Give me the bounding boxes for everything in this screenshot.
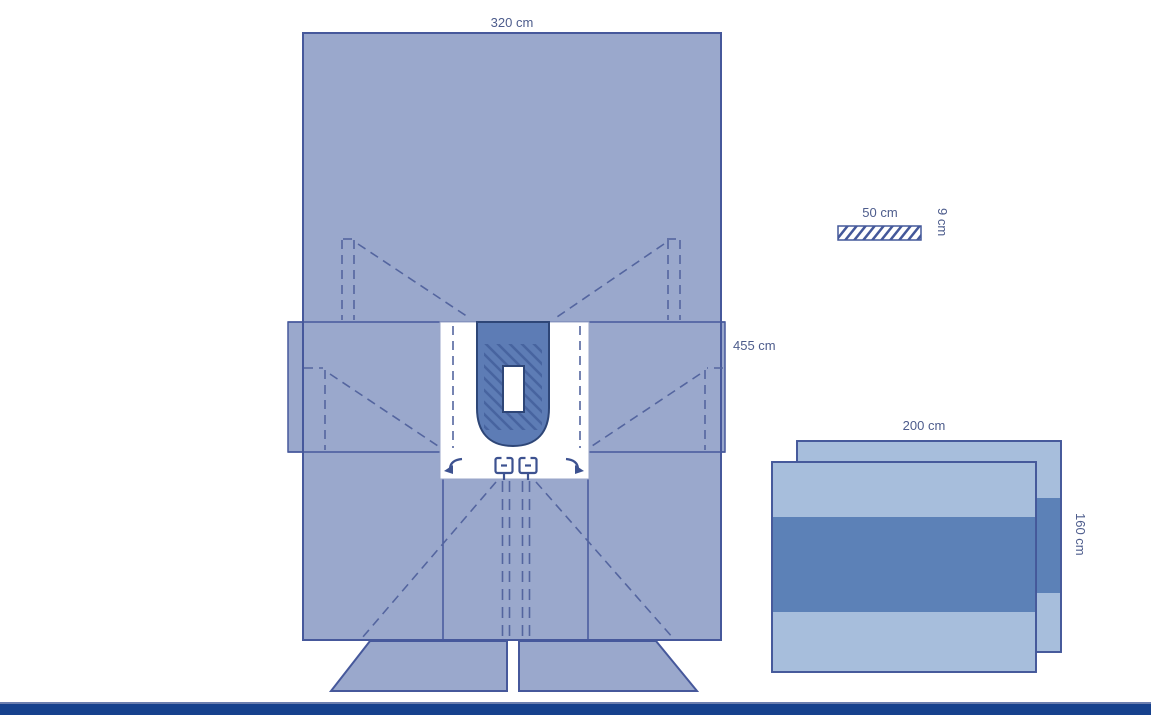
main-drape-length-label: 455 cm: [733, 338, 776, 353]
main-drape: 320 cm 455 cm: [288, 15, 776, 691]
surgical-drape-diagram: 320 cm 455 cm 50 cm 9 cm: [0, 0, 1151, 715]
side-drape-front-sheet: [772, 462, 1036, 672]
main-drape-width-label: 320 cm: [491, 15, 534, 30]
leg-flap-left: [331, 641, 507, 691]
fenestration-opening: [503, 366, 524, 412]
side-drape-height-label: 160 cm: [1073, 513, 1088, 556]
side-drapes: 200 cm 160 cm: [772, 418, 1088, 672]
scale-width-label: 50 cm: [862, 205, 897, 220]
scale-height-label: 9 cm: [935, 208, 950, 236]
leg-flap-right: [519, 641, 697, 691]
footer-bar: [0, 703, 1151, 715]
side-drape-width-label: 200 cm: [903, 418, 946, 433]
scale-indicator: 50 cm 9 cm: [834, 205, 950, 243]
side-drape-front-band: [773, 517, 1035, 612]
